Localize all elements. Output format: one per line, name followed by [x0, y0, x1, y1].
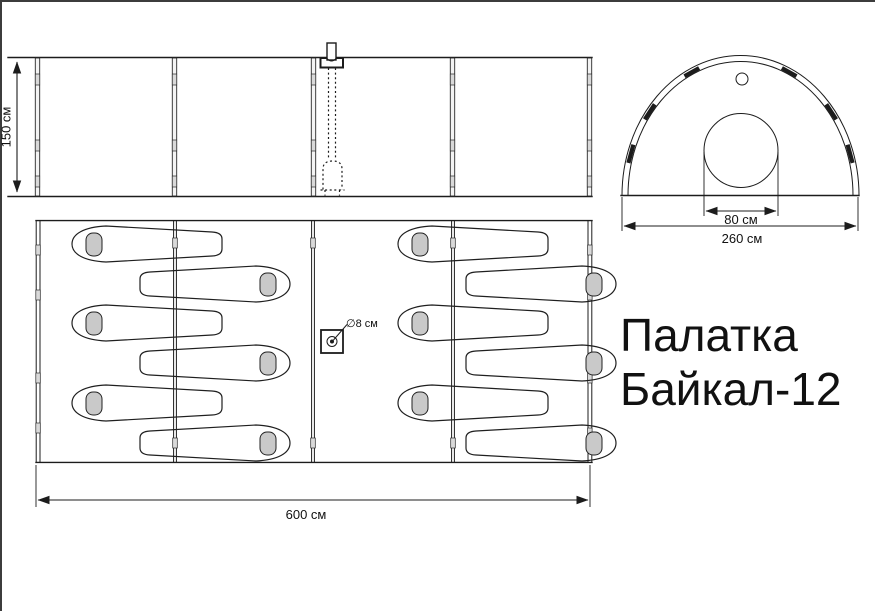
hidden-stove-body [323, 161, 342, 190]
sleeping-bag [140, 266, 290, 302]
sleeping-bag [72, 226, 222, 262]
height-dim-label: 150 см [0, 107, 14, 148]
sleeping-bag [398, 385, 548, 421]
sleeping-bag [466, 266, 616, 302]
sleeping-bag-group-left [72, 226, 290, 461]
entrance-dimension: 80 см [704, 152, 778, 227]
stove-marker: ∅8 см [321, 318, 378, 353]
chimney-pipe [327, 43, 336, 60]
height-dimension: 150 см [0, 62, 17, 192]
length-dim-label: 600 см [286, 507, 327, 522]
arch-pole-segment-marks [628, 68, 852, 163]
width-dim-label: 260 см [722, 231, 763, 246]
sleeping-bag [466, 345, 616, 381]
arch-inner [628, 61, 853, 195]
sleeping-bag [72, 385, 222, 421]
sleeping-bag [140, 345, 290, 381]
side-elevation-view: 150 см [0, 43, 592, 197]
sleeping-bag-group-right [398, 226, 616, 461]
entrance-dim-label: 80 см [724, 212, 758, 227]
floor-seams [174, 221, 455, 462]
front-arch-view: 80 см 260 см [621, 56, 859, 247]
sleeping-bag [398, 226, 548, 262]
stove-chimney [321, 43, 345, 196]
stove-pipe-label: ∅8 см [346, 318, 378, 330]
chimney-hole [736, 73, 748, 85]
sleeping-bag [140, 425, 290, 461]
entrance-circle [704, 114, 778, 188]
title-block: Палатка Байкал-12 [620, 308, 842, 416]
length-dimension: 600 см [36, 465, 590, 522]
hidden-stove-feet [321, 190, 345, 196]
floor-plan-view: ∅8 см 600 см [36, 221, 616, 522]
sleeping-bag [466, 425, 616, 461]
arch-outer [622, 56, 859, 196]
sleeping-bag [72, 305, 222, 341]
sleeping-bag [398, 305, 548, 341]
title-line-1: Палатка [620, 308, 842, 362]
technical-drawing: 150 см 80 см 260 см [0, 0, 875, 611]
title-line-2: Байкал-12 [620, 362, 842, 416]
wall-seams [35, 58, 591, 196]
